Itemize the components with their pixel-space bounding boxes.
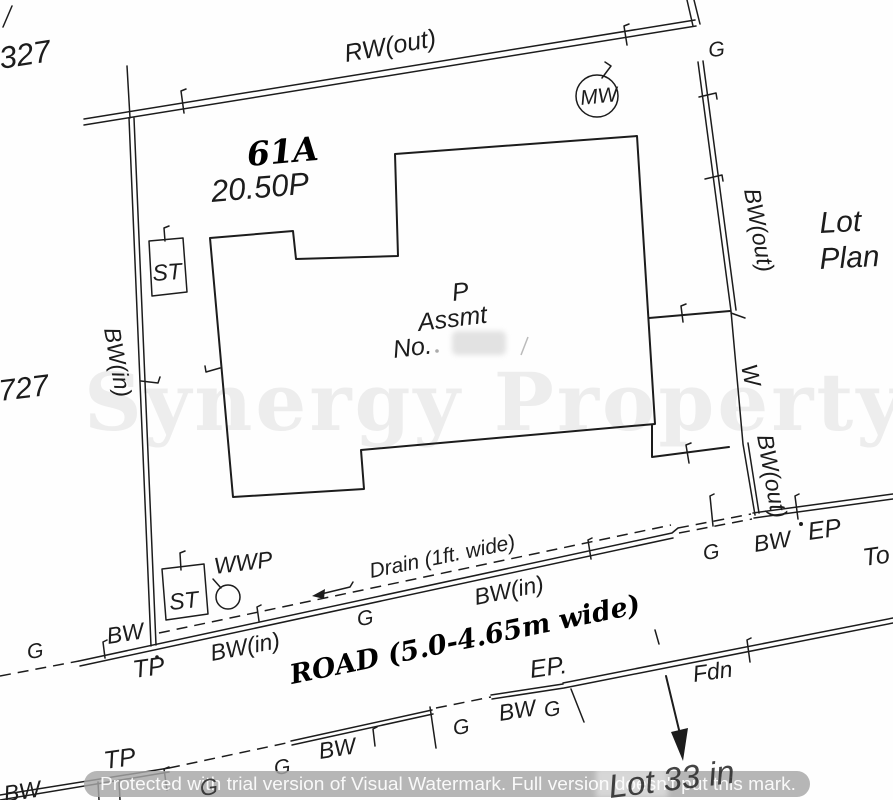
gap-label-west: G — [25, 639, 44, 664]
bw-s2-label: BW — [497, 694, 540, 726]
tp-west-label: TP — [131, 652, 167, 684]
survey-plan-sheet: Synergy Property MW 327 RW(out) G 61A 20… — [0, 0, 893, 800]
septic-tank-lower-label: ST — [168, 586, 202, 615]
point-dot-se — [799, 522, 803, 526]
bw-in-road-label: BW(in) — [472, 570, 546, 609]
assessment-number-redaction — [435, 331, 528, 355]
bw-se-label: BW — [752, 525, 795, 557]
mw-label: MW — [579, 83, 621, 110]
tp-south-label: TP — [102, 743, 138, 775]
gap-label-s4: G — [542, 697, 561, 722]
retaining-wall-label: RW(out) — [342, 24, 438, 68]
assessment-no-label: No. — [391, 331, 433, 364]
septic-tank-upper-label: ST — [152, 258, 185, 286]
lot-area-label: 20.50P — [209, 166, 311, 210]
ep-se-label: EP — [806, 514, 843, 546]
mw-symbol: MW — [576, 62, 621, 117]
to-label: To — [861, 540, 892, 571]
bw-s1-label: BW — [317, 732, 360, 764]
bw-corner-label: BW — [2, 775, 45, 800]
bw-west-label: BW — [105, 617, 148, 649]
lot-plan-word2: Plan — [819, 240, 881, 276]
wwp-symbol — [213, 579, 240, 609]
wwp-label: WWP — [212, 546, 274, 579]
gap-label-top: G — [707, 38, 725, 62]
gap-label-s1: G — [198, 773, 219, 800]
gap-label-road: G — [355, 606, 374, 631]
drain-label: Drain (1ft. wide) — [367, 531, 517, 583]
adjacent-lot-left-label: 727 — [0, 369, 52, 408]
lot-plan-word1: Lot — [819, 205, 864, 240]
bw-out-upper-label: BW(out) — [739, 186, 779, 274]
south-arrow — [666, 676, 688, 761]
adjacent-lot-top-label: 327 — [0, 33, 55, 76]
drain-arrow — [312, 582, 353, 599]
bw-in-sw-label: BW(in) — [208, 627, 282, 666]
gap-label-se: G — [701, 540, 720, 565]
foundation-label: Fdn — [691, 656, 734, 687]
plan-canvas: Synergy Property MW 327 RW(out) G 61A 20… — [0, 0, 893, 800]
gap-label-s3: G — [451, 715, 470, 740]
ep-mid-label: EP. — [528, 651, 569, 684]
